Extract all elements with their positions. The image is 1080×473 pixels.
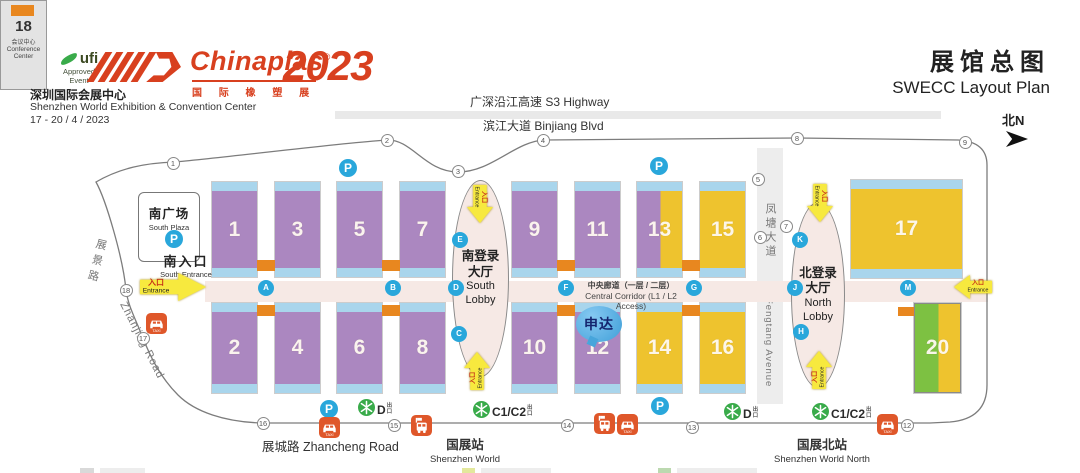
hall-roof-strip [512,268,557,277]
gate-number-3: 3 [452,165,465,178]
hall-connector [382,260,400,271]
entrance-arrow-label: 入口Entrance [471,367,484,389]
hall-number: 3 [292,218,304,242]
hall-number: 16 [711,336,734,360]
hall-roof-strip [400,268,445,277]
bus-station-icon [411,415,432,436]
gate-number-14: 14 [561,419,574,432]
station-name-cn: 国展站 [395,434,535,453]
hall-roof-strip [575,384,620,393]
entrance-arrow-left: 入口Entrance [954,275,992,299]
hall-roof-strip [400,182,445,191]
hall-13: 13 [637,182,682,277]
access-letter: C [456,330,462,338]
taxi-icon: TAXI [877,414,898,435]
svg-text:TAXI: TAXI [623,430,631,434]
entrance-arrow-right: 入口Entrance [140,273,206,301]
hall-number: 9 [529,218,541,242]
access-point-K: K [792,232,808,248]
gate-number-5: 5 [752,173,765,186]
entrance-label-en: Entrance [143,288,170,295]
hall-17: 17 [851,180,962,278]
exhibitor-badge-shenda: 申达 [576,306,622,342]
station-name-en: Shenzhen World [395,454,535,465]
legend-stub [658,468,671,473]
hall-roof-strip [851,180,962,189]
metro-logo-icon [724,403,741,425]
hall-6: 6 [337,303,382,393]
hall-20: 20 [914,303,961,393]
entrance-arrow-down: 入口Entrance [467,185,493,223]
metro-exit-label: C1/C2 [831,407,865,421]
legend-stub [462,468,475,473]
hall-roof-strip [700,268,745,277]
metro-logo-icon [473,401,490,423]
hall-roof-strip [337,384,382,393]
hall-4: 4 [275,303,320,393]
station-shenzhen-world: 国展站 Shenzhen World [395,434,535,465]
entrance-label-cn: 入口 [471,367,478,389]
hall-connector [557,305,575,316]
hall-connector [682,260,700,271]
hall-roof-strip [512,182,557,191]
parking-icon: P [650,157,668,175]
gate-number-12: 12 [901,419,914,432]
entrance-arrow-up: 入口Entrance [806,351,832,389]
south-lobby-en1: South [466,280,495,294]
hall-connector [898,307,914,316]
entrance-label-en: Entrance [474,187,480,208]
gate-number-9: 9 [959,136,972,149]
access-letter: M [905,284,912,292]
gate-number-2: 2 [381,134,394,147]
svg-text:TAXI: TAXI [325,433,333,437]
station-name-en: Shenzhen World North [752,454,892,465]
metro-exit-D: D出口 [358,399,392,421]
hall-roof-strip [851,269,962,278]
hall-number: 15 [711,218,734,242]
gate-number-18: 18 [120,284,133,297]
gate-number-6: 6 [754,231,767,244]
entrance-label-cn: 入口 [820,185,827,207]
hall-number: 2 [229,336,241,360]
access-letter: D [453,284,459,292]
hall-number: 5 [354,218,366,242]
hall-roof-strip [700,182,745,191]
entrance-label-en: Entrance [968,287,989,293]
access-letter: A [263,284,269,292]
metro-exit-C1C2: C1/C2出口 [473,401,533,423]
legend-stub [100,468,145,473]
hall-roof-strip [337,268,382,277]
access-point-B: B [385,280,401,296]
hall-connector [257,260,275,271]
central-corridor-cn: 中央廊道（一层 / 二层） [575,281,687,291]
access-letter: G [691,284,697,292]
south-lobby-en2: Lobby [466,294,496,308]
gate-number-13: 13 [686,421,699,434]
access-point-F: F [558,280,574,296]
taxi-icon: TAXI [617,414,638,435]
hall-roof-strip [700,303,745,312]
entrance-label-en: Entrance [814,186,820,207]
hall-15: 15 [700,182,745,277]
entrance-label-cn: 入口 [480,186,487,208]
parking-icon: P [651,397,669,415]
hall-number: 4 [292,336,304,360]
hall-roof-strip [275,303,320,312]
station-shenzhen-world-north: 国展北站 Shenzhen World North [752,434,892,465]
hall-roof-strip [575,268,620,277]
entrance-arrow-up: 入口Entrance [464,352,490,390]
hall-connector [382,305,400,316]
entrance-arrow-label: 入口Entrance [142,279,170,295]
hall-connector [257,305,275,316]
gate-number-4: 4 [537,134,550,147]
access-point-C: C [451,326,467,342]
access-point-D: D [448,280,464,296]
metro-exit-C1C2: C1/C2出口 [812,403,872,425]
taxi-icon: TAXI [319,417,340,438]
hall-9: 9 [512,182,557,277]
access-letter: J [793,284,797,292]
legend-stub [80,468,94,473]
svg-text:TAXI: TAXI [883,430,891,434]
gate-number-16: 16 [257,417,270,430]
hall-16: 16 [700,303,745,393]
access-point-H: H [793,324,809,340]
hall-number: 6 [354,336,366,360]
metro-logo-icon [358,399,375,421]
hall-7: 7 [400,182,445,277]
hall-10: 10 [512,303,557,393]
hall-roof-strip [400,303,445,312]
hall-8: 8 [400,303,445,393]
north-lobby-cn2: 大厅 [805,281,830,297]
hall-roof-strip [275,268,320,277]
hall-roof-strip [637,268,682,277]
metro-exit-suffix: 出口 [527,406,533,418]
north-lobby-en2: Lobby [803,311,833,325]
hall-roof-strip [212,182,257,191]
access-point-J: J [787,280,803,296]
hall-roof-strip [575,182,620,191]
parking-icon: P [165,230,183,248]
parking-icon: P [339,159,357,177]
metro-exit-suffix: 出口 [753,408,759,420]
access-letter: F [564,284,569,292]
entrance-label-cn: 入口 [967,281,989,288]
access-letter: E [457,236,462,244]
entrance-label-cn: 入口 [142,279,170,288]
hall-11: 11 [575,182,620,277]
south-plaza-label-cn: 南广场 [139,203,199,222]
hall-2: 2 [212,303,257,393]
parking-icon: P [320,400,338,418]
conference-bridge-block [11,5,34,16]
hall-number: 14 [648,336,671,360]
metro-exit-label: C1/C2 [492,405,526,419]
hall-number: 13 [648,218,671,242]
hall-roof-strip [637,182,682,191]
taxi-icon: TAXI [146,313,167,334]
hall-connector [557,260,575,271]
station-name-cn: 国展北站 [752,434,892,453]
entrance-arrow-label: 入口Entrance [967,281,989,294]
hall-number: 20 [926,336,949,360]
hall-5: 5 [337,182,382,277]
access-letter: H [798,328,804,336]
entrance-arrow-label: 入口Entrance [814,185,827,207]
hall-roof-strip [512,384,557,393]
hall-1: 1 [212,182,257,277]
south-lobby-cn1: 南登录 [462,249,500,265]
access-point-M: M [900,280,916,296]
metro-exit-label: D [743,407,752,421]
metro-logo-icon [812,403,829,425]
hall-roof-strip [275,384,320,393]
bus-station-icon [594,413,615,434]
hall-roof-strip [212,303,257,312]
hall-roof-strip [337,182,382,191]
north-lobby-en1: North [805,297,832,311]
hall-roof-strip [700,384,745,393]
hall-3: 3 [275,182,320,277]
entrance-label-en: Entrance [819,366,825,387]
north-lobby-cn1: 北登录 [799,266,837,282]
entrance-arrow-down: 入口Entrance [807,184,833,222]
hall-roof-strip [512,303,557,312]
hall-14: 14 [637,303,682,393]
metro-exit-label: D [377,403,386,417]
gate-number-8: 8 [791,132,804,145]
access-letter: K [797,236,803,244]
hall-roof-strip [337,303,382,312]
entrance-arrow-label: 入口Entrance [474,186,487,208]
hall-number: 17 [895,217,918,241]
metro-exit-D: D出口 [724,403,758,425]
legend-stub [677,468,757,473]
entrance-arrow-label: 入口Entrance [813,366,826,388]
swecc-layout-map: ufi Approved Event Chinaplas® 国 际 橡 塑 展 … [0,0,1080,473]
access-letter: B [390,284,396,292]
hall-roof-strip [400,384,445,393]
hall-roof-strip [212,268,257,277]
entrance-label-cn: 入口 [813,366,820,388]
hall-roof-strip [637,384,682,393]
legend-stub [481,468,551,473]
hall-number: 8 [417,336,429,360]
hall-number: 1 [229,218,241,242]
south-lobby-cn2: 大厅 [468,265,493,281]
hall-roof-strip [275,182,320,191]
entrance-label-en: Entrance [477,367,483,388]
metro-exit-suffix: 出口 [387,404,393,416]
metro-exit-suffix: 出口 [866,408,872,420]
access-point-A: A [258,280,274,296]
access-point-E: E [452,232,468,248]
hall-roof-strip [212,384,257,393]
gate-number-7: 7 [780,220,793,233]
hall-number: 7 [417,218,429,242]
hall-number: 10 [523,336,546,360]
hall-number: 11 [586,218,608,242]
gate-number-1: 1 [167,157,180,170]
access-point-G: G [686,280,702,296]
svg-text:TAXI: TAXI [152,329,160,333]
